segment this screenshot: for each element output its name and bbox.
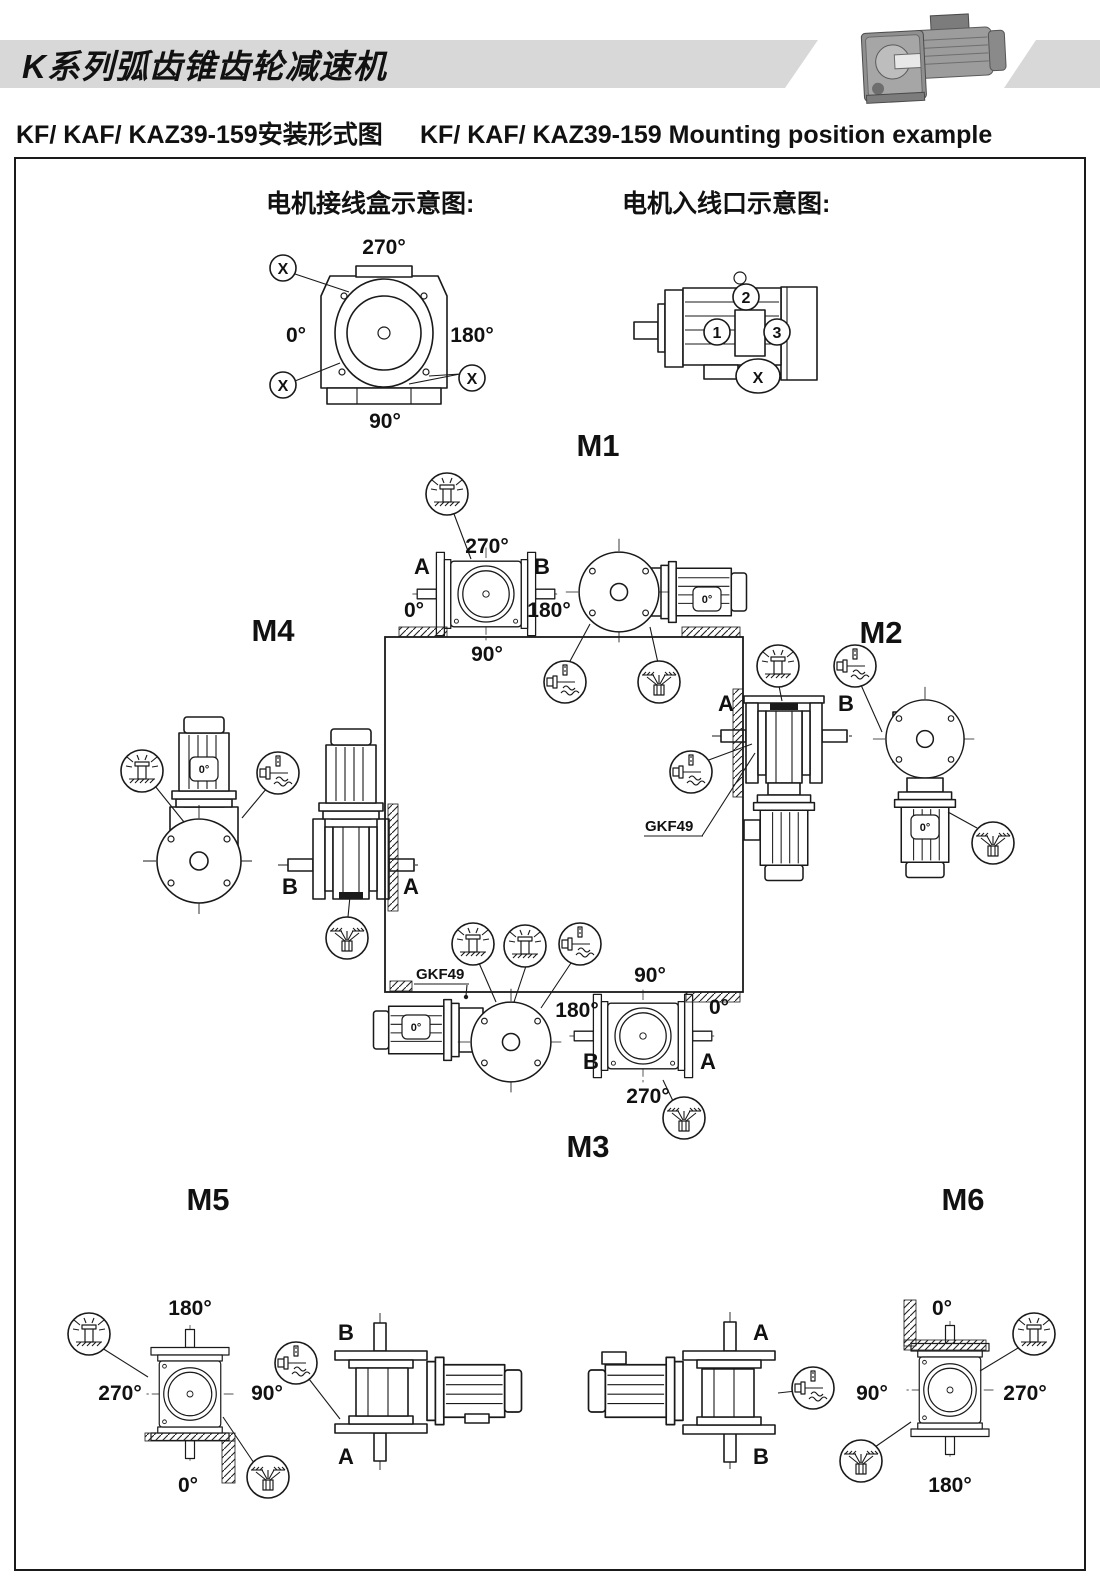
breather-icon xyxy=(757,645,799,687)
m5-port-bottom: A xyxy=(338,1444,354,1469)
m3-motor-nameplate xyxy=(402,1015,430,1039)
breather-icon xyxy=(426,473,468,515)
oil-level-icon xyxy=(275,1342,317,1384)
page-title-cn: KF/ KAF/ KAZ39-159安装形式图 xyxy=(16,120,383,149)
m1-motor-nameplate xyxy=(693,587,721,611)
breather-icon xyxy=(452,923,494,965)
m6-port-top: A xyxy=(753,1320,769,1345)
series-title: K系列弧齿锥齿轮减速机 xyxy=(22,48,388,85)
motor-terminal-box-diagram: 270° 0° 180° 90° xyxy=(270,236,494,433)
oil-drain-icon xyxy=(638,661,680,703)
entry-point-1-label: 1 xyxy=(713,325,722,342)
hatch-top-left xyxy=(399,627,447,637)
breather-icon xyxy=(68,1313,110,1355)
entry-point-2: 2 xyxy=(733,284,759,310)
hatch-left-edge xyxy=(388,804,398,911)
m5-view-side xyxy=(335,1313,522,1472)
m2-label: M2 xyxy=(859,615,902,650)
m1-port-right: B xyxy=(534,554,550,579)
terminal-box-title: 电机接线盒示意图: xyxy=(266,189,474,218)
m3-angle-top: 90° xyxy=(634,964,666,987)
m3-view-front xyxy=(374,989,565,1095)
motor-cable-entry-diagram: 2 1 3 X xyxy=(634,272,817,393)
m4-label: M4 xyxy=(251,613,295,648)
m6-view-side xyxy=(589,1312,776,1473)
entry-point-3: 3 xyxy=(764,319,790,345)
terminal-angle-right: 180° xyxy=(450,324,493,347)
m3-label: M3 xyxy=(566,1129,609,1164)
m3-angle-bottom: 270° xyxy=(626,1085,669,1108)
oil-level-icon xyxy=(257,752,299,794)
terminal-x-bottom-right xyxy=(459,365,485,391)
oil-level-icon xyxy=(792,1367,834,1409)
cable-entry-title: 电机入线口示意图: xyxy=(622,189,830,218)
oil-drain-icon xyxy=(972,822,1014,864)
m4-port-right: A xyxy=(403,874,419,899)
m1-angle-right: 180° xyxy=(527,599,570,622)
oil-level-icon xyxy=(834,645,876,687)
terminal-x-top-left xyxy=(270,255,296,281)
m5-label: M5 xyxy=(186,1182,229,1217)
m6-angle-top: 0° xyxy=(932,1297,952,1320)
m2-port-right: B xyxy=(838,691,854,716)
m6-label: M6 xyxy=(941,1182,984,1217)
m6-angle-left: 90° xyxy=(856,1382,888,1405)
m5-angle-right: 90° xyxy=(251,1382,283,1405)
m6-angle-right: 270° xyxy=(1003,1382,1046,1405)
m1-angle-bottom: 90° xyxy=(471,643,503,666)
m5-angle-bottom: 0° xyxy=(178,1474,198,1497)
m2-view-front xyxy=(873,687,977,878)
oil-level-icon xyxy=(559,923,601,965)
hatch-bottom-left xyxy=(390,981,412,991)
m3-angle-right: 0° xyxy=(709,996,729,1019)
oil-drain-icon xyxy=(326,917,368,959)
page-title-en: KF/ KAF/ KAZ39-159 Mounting position exa… xyxy=(420,121,992,149)
catalog-page: 0° X xyxy=(0,0,1100,1583)
oil-drain-icon xyxy=(840,1440,882,1482)
hatch-top-right xyxy=(682,627,740,637)
m5-angle-top: 180° xyxy=(168,1297,211,1320)
m3-callout-gkf49: GKF49 xyxy=(416,966,464,983)
terminal-x-bottom-left xyxy=(270,372,296,398)
m5-angle-left: 270° xyxy=(98,1382,141,1405)
entry-point-x: X xyxy=(736,359,780,393)
m2-port-left: A xyxy=(718,691,734,716)
m3-port-left: B xyxy=(583,1049,599,1074)
breather-icon xyxy=(1013,1313,1055,1355)
entry-point-1: 1 xyxy=(704,319,730,345)
product-photo xyxy=(860,12,1007,103)
oil-level-icon xyxy=(544,661,586,703)
m1-label: M1 xyxy=(576,428,619,463)
m4-view-side xyxy=(278,729,422,899)
terminal-angle-left: 0° xyxy=(286,324,306,347)
m5-view-end xyxy=(147,1325,234,1463)
m4-view-front xyxy=(143,717,255,917)
oil-drain-icon xyxy=(247,1456,289,1498)
m3-angle-left: 180° xyxy=(555,999,598,1022)
m1-port-left: A xyxy=(414,554,430,579)
oil-level-icon xyxy=(670,751,712,793)
m6-angle-bottom: 180° xyxy=(928,1474,971,1497)
m4-motor-nameplate xyxy=(190,757,218,781)
entry-point-2-label: 2 xyxy=(742,290,751,307)
breather-icon xyxy=(121,750,163,792)
hatch-right-edge xyxy=(733,689,743,797)
m5-port-top: B xyxy=(338,1320,354,1345)
m2-callout-gkf49: GKF49 xyxy=(645,818,693,835)
entry-point-x-label: X xyxy=(753,370,764,387)
terminal-angle-top: 270° xyxy=(362,236,405,259)
m3-port-right: A xyxy=(700,1049,716,1074)
terminal-angle-bottom: 90° xyxy=(369,410,401,433)
m2-motor-nameplate xyxy=(911,815,939,839)
m1-angle-left: 0° xyxy=(404,599,424,622)
m1-angle-top: 270° xyxy=(465,535,508,558)
breather-icon xyxy=(504,925,546,967)
m6-port-bottom: B xyxy=(753,1444,769,1469)
m4-port-left: B xyxy=(282,874,298,899)
leader-lines xyxy=(102,514,1018,1463)
entry-point-3-label: 3 xyxy=(773,325,782,342)
